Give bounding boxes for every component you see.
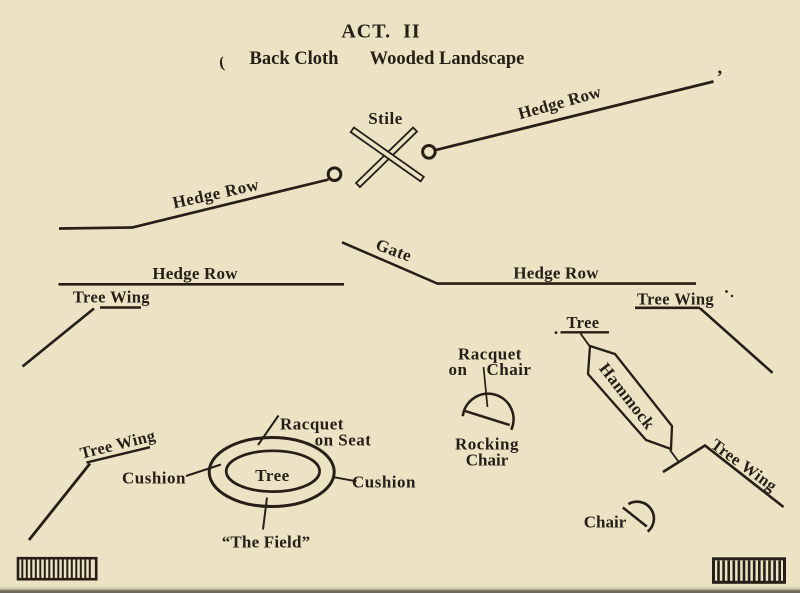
svg-text:Stile: Stile xyxy=(368,109,403,128)
svg-text:Tree Wing: Tree Wing xyxy=(73,288,150,307)
svg-text:on Chair: on Chair xyxy=(449,360,532,379)
svg-text:Cushion: Cushion xyxy=(122,469,186,488)
svg-text:Cushion: Cushion xyxy=(352,473,416,492)
svg-text:Chair: Chair xyxy=(584,513,627,532)
svg-text:’: ’ xyxy=(717,67,723,88)
svg-text:ACT. II: ACT. II xyxy=(341,21,420,43)
svg-text:Chair: Chair xyxy=(466,451,509,470)
svg-text:on Seat: on Seat xyxy=(315,431,372,450)
svg-text:Tree: Tree xyxy=(566,313,599,332)
svg-text:“The Field”: “The Field” xyxy=(222,533,311,552)
svg-text:Tree Wing: Tree Wing xyxy=(637,290,714,309)
svg-text:Back Cloth: Back Cloth xyxy=(250,49,340,69)
svg-text:Tree: Tree xyxy=(255,466,289,485)
svg-text:Hedge Row: Hedge Row xyxy=(152,264,238,283)
svg-text:Wooded Landscape: Wooded Landscape xyxy=(370,49,525,69)
svg-text:Hedge Row: Hedge Row xyxy=(513,264,599,283)
